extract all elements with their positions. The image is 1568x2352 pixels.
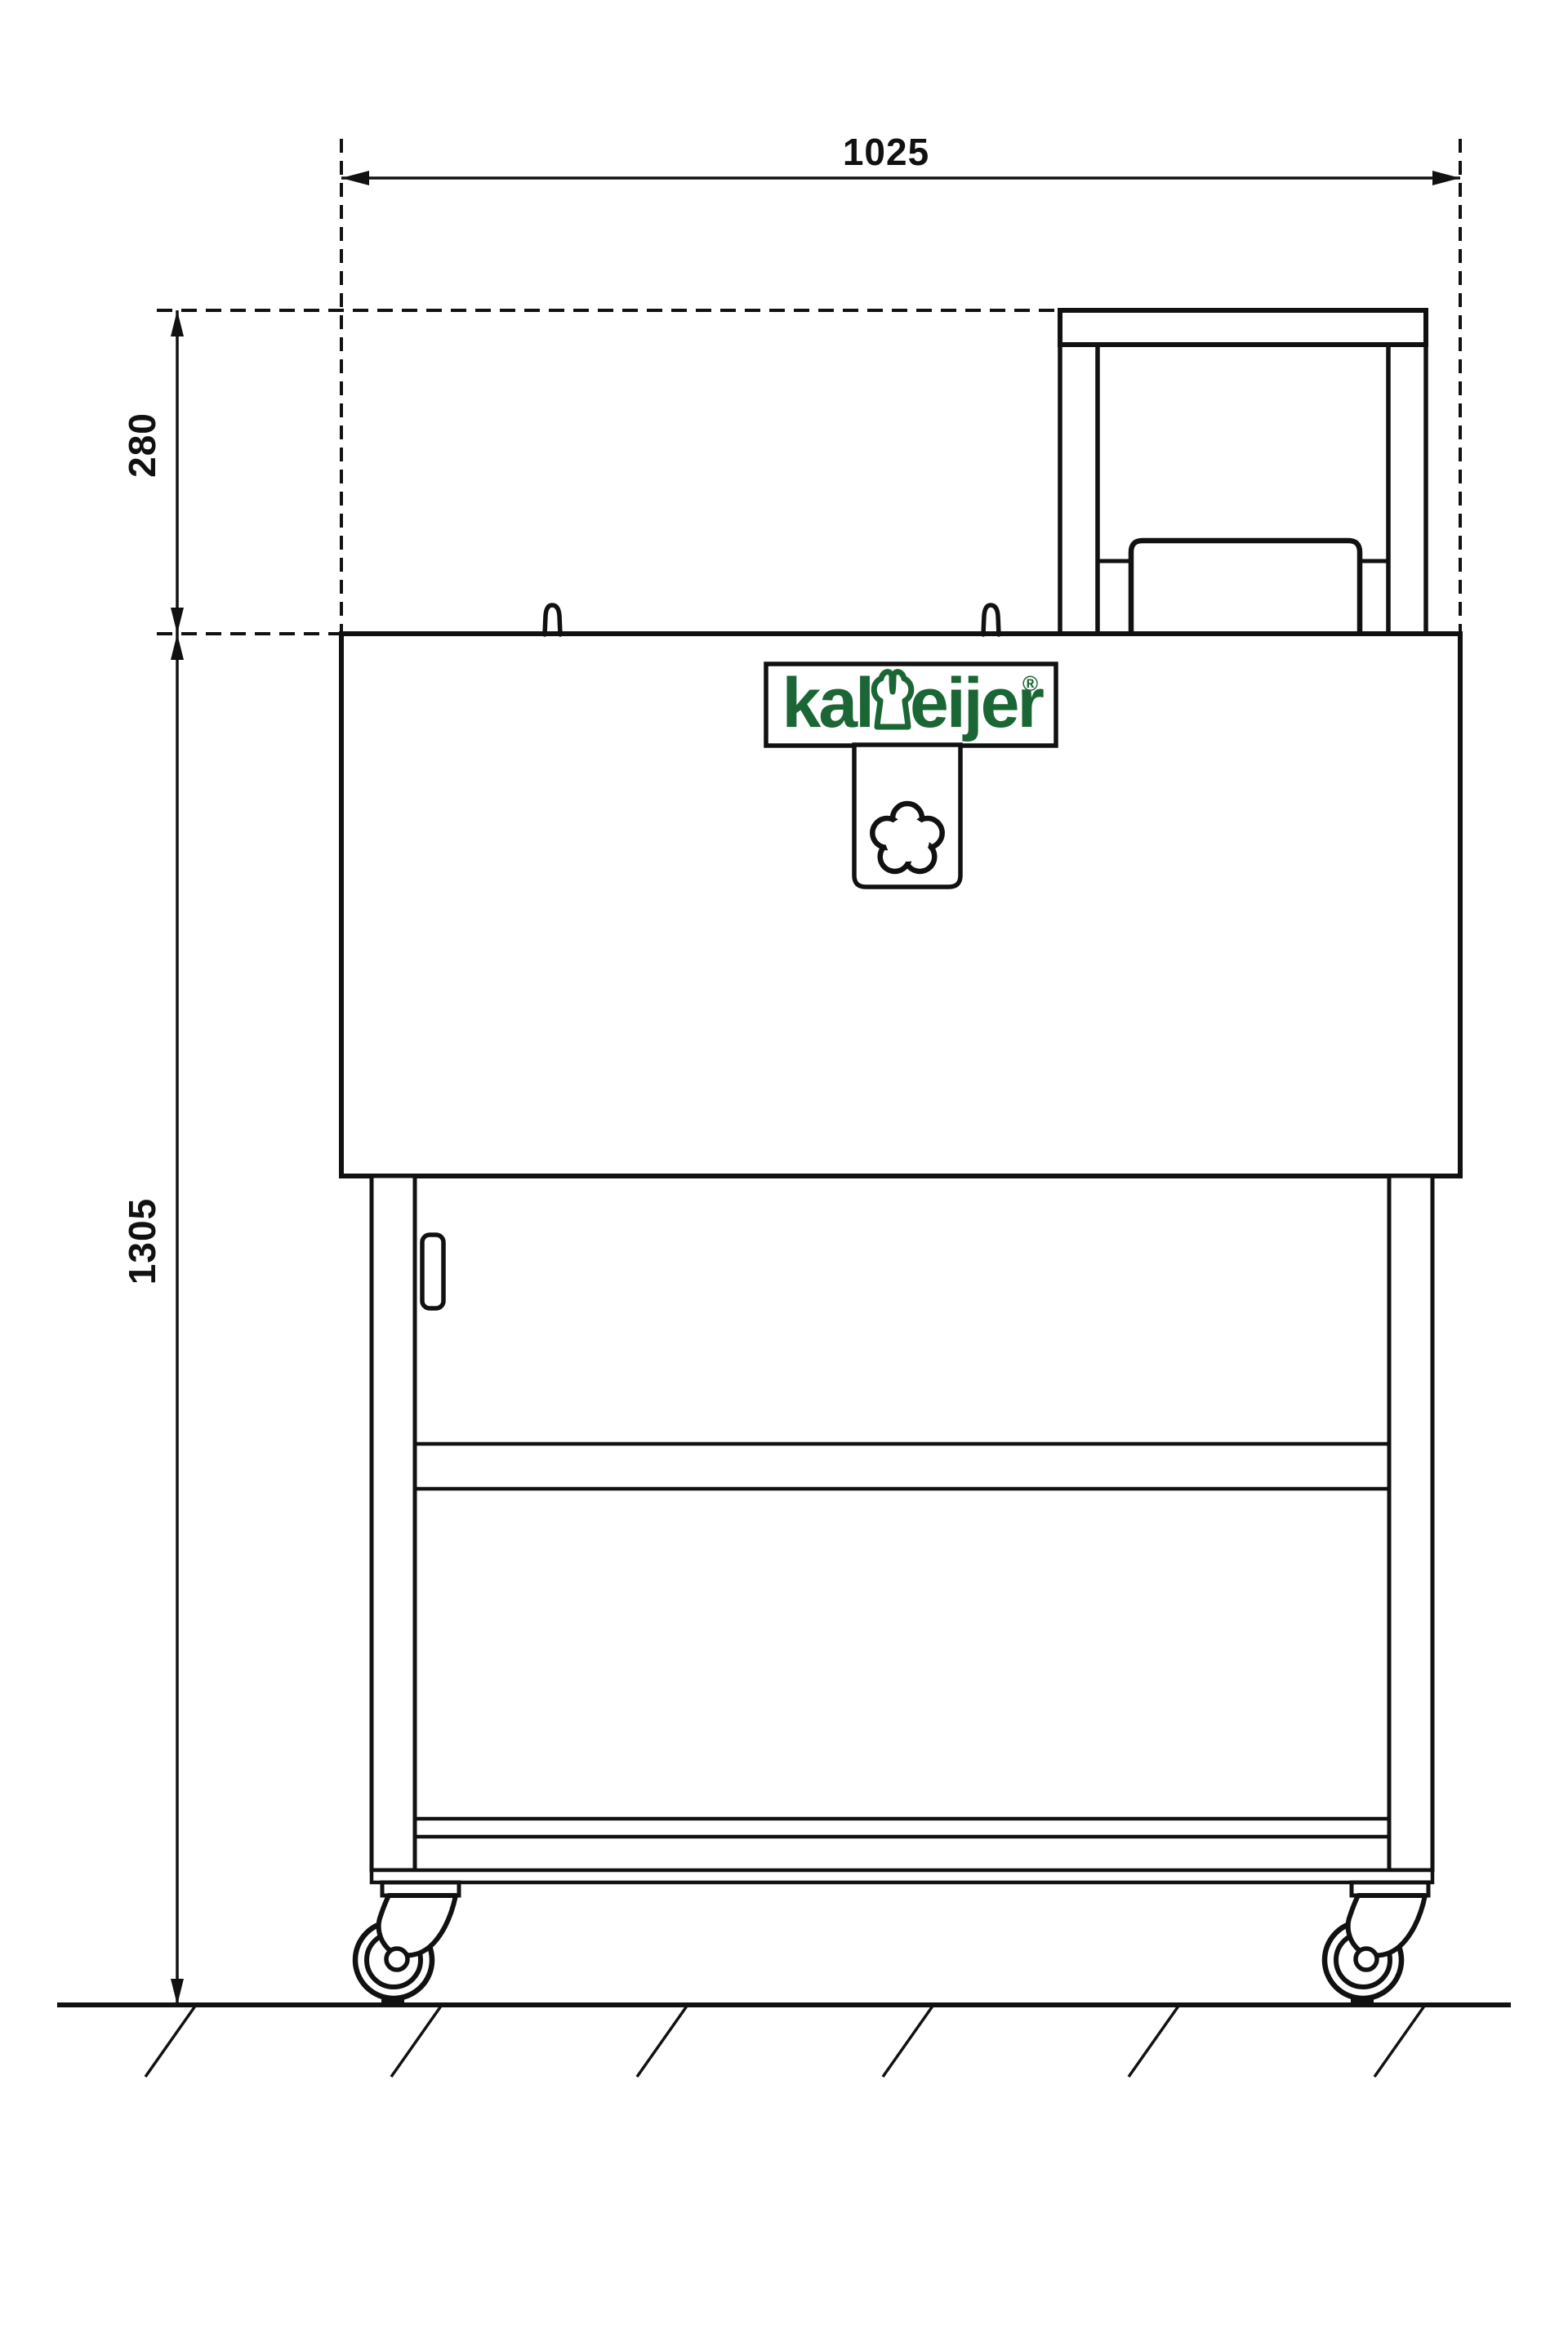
hopper-piston-block xyxy=(1131,541,1360,635)
arrowhead-down-icon xyxy=(171,608,184,634)
ground-hatch xyxy=(1129,2005,1179,2077)
knob-assembly xyxy=(854,745,960,887)
dimension-upper-height-label: 280 xyxy=(121,412,163,478)
hopper-top-bar xyxy=(1060,310,1426,345)
mounting-hook-left xyxy=(545,605,560,635)
ground-hatch xyxy=(391,2005,442,2077)
machine xyxy=(57,310,1511,2077)
dimension-total-height-label: 1305 xyxy=(121,1198,163,1285)
ground-hatch xyxy=(145,2005,196,2077)
logo-text-kal: kal xyxy=(782,664,872,742)
arrowhead-up-icon xyxy=(171,634,184,660)
caster-fork xyxy=(379,1895,456,1955)
swivel-caster-right xyxy=(1325,1882,1428,2006)
ground-hatch xyxy=(883,2005,933,2077)
dimension-width-label: 1025 xyxy=(843,131,929,173)
dimension-total-height xyxy=(171,634,184,2005)
drawing-page: 1025 280 1305 xyxy=(0,0,1568,2352)
ground-hatch xyxy=(637,2005,688,2077)
chef-hat-icon xyxy=(874,672,911,727)
undercarriage xyxy=(372,1176,1432,1882)
logo: kal eijer ® xyxy=(782,664,1044,742)
mounting-hook-right xyxy=(983,605,999,635)
swivel-caster-left xyxy=(355,1882,459,2006)
arrowhead-down-icon xyxy=(171,1979,184,2005)
hopper-right-column xyxy=(1388,345,1426,635)
arrowhead-left-icon xyxy=(341,171,369,185)
wheel-hub xyxy=(386,1949,408,1970)
arrowhead-right-icon xyxy=(1432,171,1460,185)
right-leg xyxy=(1389,1176,1432,1870)
wheel-hub xyxy=(1356,1949,1377,1970)
door-handle xyxy=(422,1235,443,1308)
logo-registered-mark: ® xyxy=(1022,671,1038,696)
arrowhead-up-icon xyxy=(171,310,184,336)
caster-fork xyxy=(1348,1895,1425,1955)
ground xyxy=(57,2005,1511,2077)
left-leg xyxy=(372,1176,415,1870)
technical-drawing: 1025 280 1305 xyxy=(0,0,1568,2352)
dimension-upper-height xyxy=(171,310,184,634)
hopper-assembly xyxy=(1060,310,1426,635)
bottom-frame-bar xyxy=(372,1870,1432,1882)
ground-hatch xyxy=(1374,2005,1425,2077)
hopper-left-column xyxy=(1060,345,1098,635)
